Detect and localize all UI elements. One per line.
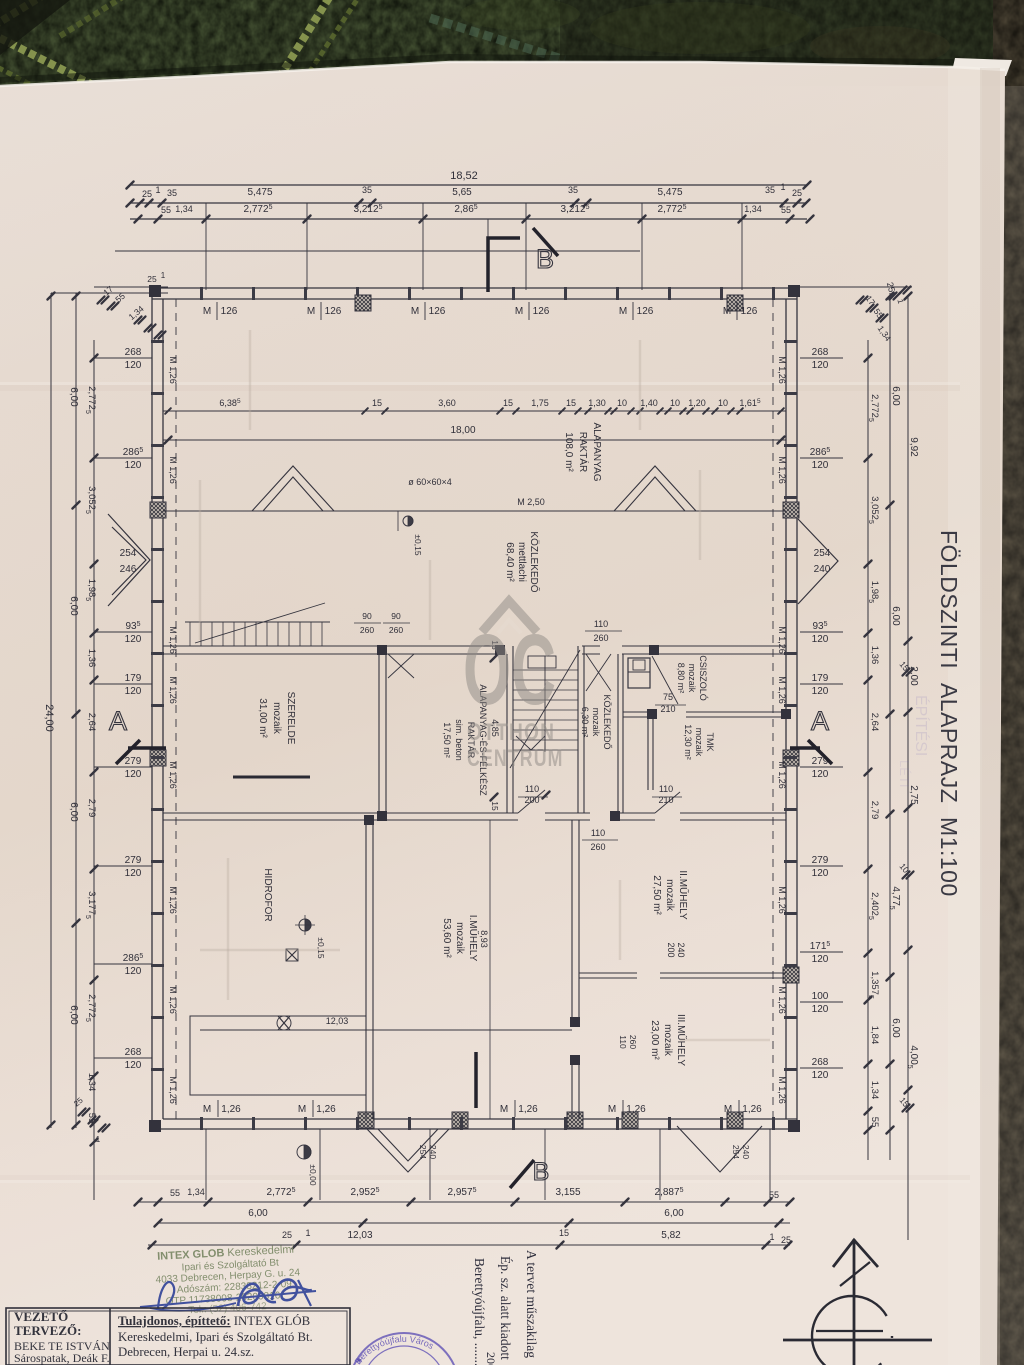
svg-text:90: 90 <box>391 611 401 621</box>
svg-text:55: 55 <box>781 205 791 215</box>
svg-text:2,75: 2,75 <box>908 785 919 805</box>
svg-text:mozaik: mozaik <box>271 702 282 735</box>
svg-text:120: 120 <box>812 1070 829 1081</box>
svg-text:6,00: 6,00 <box>890 1018 901 1038</box>
svg-text:120: 120 <box>812 686 829 697</box>
svg-text:1,20: 1,20 <box>688 398 706 408</box>
svg-text:1,84: 1,84 <box>869 1026 880 1045</box>
svg-text:A tervet műszakilag: A tervet műszakilag <box>524 1250 539 1358</box>
svg-text:179: 179 <box>812 673 829 684</box>
svg-text:M 1,26: M 1,26 <box>168 676 178 704</box>
svg-text:mozaik: mozaik <box>694 728 704 757</box>
svg-text:260: 260 <box>628 1035 638 1049</box>
svg-text:6,00: 6,00 <box>68 387 79 407</box>
svg-text:1: 1 <box>780 182 785 192</box>
svg-text:25: 25 <box>282 1230 292 1240</box>
svg-text:5,65: 5,65 <box>452 187 472 198</box>
svg-text:M 2,50: M 2,50 <box>517 497 545 507</box>
svg-text:Debrecen, Herpai u. 24.sz.: Debrecen, Herpai u. 24.sz. <box>118 1345 254 1359</box>
svg-text:5,82: 5,82 <box>661 1230 681 1241</box>
svg-text:2,9525: 2,9525 <box>351 1187 380 1198</box>
svg-text:M 1,26: M 1,26 <box>168 456 178 484</box>
svg-text:M 1,26: M 1,26 <box>168 761 178 789</box>
svg-text:M: M <box>724 1104 732 1115</box>
svg-text:35: 35 <box>362 185 372 195</box>
svg-text:6,00: 6,00 <box>664 1208 684 1219</box>
svg-text:1,36: 1,36 <box>86 649 97 668</box>
svg-text:8,93: 8,93 <box>479 930 489 948</box>
svg-text:260: 260 <box>590 842 605 852</box>
svg-text:SZERELDE: SZERELDE <box>285 692 296 745</box>
svg-text:254: 254 <box>418 1145 428 1159</box>
svg-text:120: 120 <box>125 769 142 780</box>
svg-text:LÉTI: LÉTI <box>897 760 912 787</box>
svg-text:12,30 m²: 12,30 m² <box>683 724 693 760</box>
svg-text:120: 120 <box>125 1060 142 1071</box>
svg-text:M 1,26: M 1,26 <box>168 986 178 1014</box>
svg-text:A: A <box>811 706 829 736</box>
svg-text:1,34: 1,34 <box>86 1073 97 1092</box>
svg-text:M 1,26: M 1,26 <box>168 356 178 384</box>
svg-text:1,75: 1,75 <box>531 398 549 408</box>
svg-text:M: M <box>723 306 731 317</box>
svg-text:90: 90 <box>362 611 372 621</box>
svg-text:279: 279 <box>812 855 829 866</box>
svg-text:M: M <box>500 1104 508 1115</box>
svg-text:25: 25 <box>142 189 152 199</box>
svg-text:120: 120 <box>812 460 829 471</box>
svg-text:3,60: 3,60 <box>438 398 456 408</box>
svg-text:24,00: 24,00 <box>43 704 55 732</box>
svg-text:68,40 m²: 68,40 m² <box>504 542 515 582</box>
svg-text:KÖZLEKEDŐ: KÖZLEKEDŐ <box>602 694 612 749</box>
svg-text:110: 110 <box>525 784 539 794</box>
svg-text:OC: OC <box>463 614 556 726</box>
svg-text:M 1,26: M 1,26 <box>777 676 787 704</box>
svg-text:±0,00: ±0,00 <box>308 1164 318 1185</box>
svg-text:Tulajdonos, építtető: INTEX GL: Tulajdonos, építtető: INTEX GLÓB <box>118 1314 310 1328</box>
svg-text:1,26: 1,26 <box>626 1104 646 1115</box>
svg-text:2,7725: 2,7725 <box>658 204 687 215</box>
svg-text:120: 120 <box>125 966 142 977</box>
svg-text:mozaik: mozaik <box>687 664 697 693</box>
svg-text:M 1,26: M 1,26 <box>777 356 787 384</box>
svg-text:1,26: 1,26 <box>518 1104 538 1115</box>
svg-text:6,30 m²: 6,30 m² <box>580 707 590 738</box>
svg-text:M 1,26: M 1,26 <box>777 1076 787 1104</box>
svg-text:25: 25 <box>792 188 802 198</box>
svg-text:260: 260 <box>593 633 608 643</box>
svg-text:2,7725: 2,7725 <box>244 204 273 215</box>
svg-text:FÖLDSZINTI ALAPRAJZ M1:100: FÖLDSZINTI ALAPRAJZ M1:100 <box>936 530 962 897</box>
svg-text:M: M <box>411 306 419 317</box>
svg-text:I.MŰHELY: I.MŰHELY <box>467 915 481 962</box>
svg-text:120: 120 <box>812 868 829 879</box>
svg-text:120: 120 <box>125 686 142 697</box>
svg-text:200: 200 <box>484 1352 498 1365</box>
svg-text:126: 126 <box>429 306 446 317</box>
svg-text:2,79: 2,79 <box>869 801 880 820</box>
svg-text:CSISZOLÓ: CSISZOLÓ <box>698 655 708 701</box>
svg-text:6,00: 6,00 <box>68 1005 79 1025</box>
svg-text:1: 1 <box>96 1135 101 1144</box>
svg-text:5,475: 5,475 <box>247 187 272 198</box>
svg-text:110: 110 <box>594 619 608 629</box>
svg-text:55: 55 <box>170 1188 180 1198</box>
svg-text:mozaik: mozaik <box>662 1024 673 1057</box>
svg-text:1,34: 1,34 <box>187 1187 205 1197</box>
svg-text:B: B <box>533 1158 550 1186</box>
svg-text:B: B <box>536 244 554 274</box>
svg-text:120: 120 <box>812 769 829 780</box>
svg-text:18,00: 18,00 <box>450 425 475 436</box>
svg-text:246: 246 <box>120 564 137 575</box>
svg-text:HIDROFOR: HIDROFOR <box>262 868 273 921</box>
svg-text:120: 120 <box>125 634 142 645</box>
svg-text:ÉPÍTÉSI: ÉPÍTÉSI <box>912 695 931 756</box>
svg-text:120: 120 <box>125 460 142 471</box>
svg-text:mozaik: mozaik <box>454 922 465 955</box>
svg-text:ALAPANYAG: ALAPANYAG <box>591 422 602 481</box>
svg-text:120: 120 <box>812 634 829 645</box>
svg-text:6,00: 6,00 <box>68 802 79 822</box>
svg-text:1,34: 1,34 <box>175 204 193 214</box>
svg-text:M 1,26: M 1,26 <box>777 886 787 914</box>
svg-text:mozaik: mozaik <box>664 879 675 912</box>
svg-text:1: 1 <box>155 185 160 195</box>
svg-text:210: 210 <box>660 704 675 714</box>
svg-text:mozaik: mozaik <box>591 708 601 737</box>
svg-text:1,30: 1,30 <box>588 398 606 408</box>
svg-text:±0,15: ±0,15 <box>316 937 326 958</box>
svg-text:10: 10 <box>670 398 680 408</box>
svg-text:126: 126 <box>325 306 342 317</box>
svg-text:279: 279 <box>125 756 142 767</box>
svg-text:1: 1 <box>161 271 166 280</box>
svg-text:12,03: 12,03 <box>326 1016 349 1026</box>
svg-text:210: 210 <box>658 795 673 805</box>
svg-text:254: 254 <box>731 1145 741 1159</box>
svg-text:27,50 m²: 27,50 m² <box>651 875 662 915</box>
svg-text:2,9575: 2,9575 <box>448 1187 477 1198</box>
svg-text:6,00: 6,00 <box>890 606 901 626</box>
svg-text:M: M <box>515 306 523 317</box>
svg-text:10: 10 <box>718 398 728 408</box>
svg-text:15: 15 <box>559 1228 569 1238</box>
svg-text:OTTHON: OTTHON <box>467 718 555 746</box>
svg-text:120: 120 <box>125 868 142 879</box>
svg-text:120: 120 <box>812 360 829 371</box>
svg-text:23,00 m²: 23,00 m² <box>649 1020 660 1060</box>
svg-text:100: 100 <box>812 991 829 1002</box>
svg-text:RAKTÁR: RAKTÁR <box>577 432 590 473</box>
svg-text:6,00: 6,00 <box>248 1208 268 1219</box>
svg-text:126: 126 <box>741 306 758 317</box>
svg-text:KÖZLEKEDŐ: KÖZLEKEDŐ <box>528 531 542 592</box>
svg-text:15: 15 <box>566 398 576 408</box>
svg-text:55: 55 <box>769 1190 779 1200</box>
svg-text:1,36: 1,36 <box>869 646 880 665</box>
svg-text:M 1,26: M 1,26 <box>168 1076 178 1104</box>
svg-text:Ép. sz. alatt kiadott: Ép. sz. alatt kiadott <box>498 1256 513 1360</box>
svg-text:200: 200 <box>666 942 676 957</box>
svg-text:M 1,26: M 1,26 <box>777 456 787 484</box>
svg-text:2,64: 2,64 <box>869 713 880 732</box>
svg-text:6,00: 6,00 <box>890 386 901 406</box>
svg-text:3,2125: 3,2125 <box>561 204 590 215</box>
svg-text:1,26: 1,26 <box>742 1104 762 1115</box>
svg-text:M 1,26: M 1,26 <box>168 626 178 654</box>
svg-text:279: 279 <box>125 855 142 866</box>
svg-text:120: 120 <box>812 1004 829 1015</box>
svg-text:179: 179 <box>125 673 142 684</box>
svg-text:35: 35 <box>167 188 177 198</box>
svg-text:5,475: 5,475 <box>657 187 682 198</box>
svg-text:±0,15: ±0,15 <box>413 534 423 555</box>
svg-text:1: 1 <box>305 1228 310 1238</box>
svg-text:126: 126 <box>221 306 238 317</box>
svg-text:240: 240 <box>814 564 831 575</box>
svg-text:254: 254 <box>120 548 137 559</box>
svg-text:TMK: TMK <box>705 733 715 752</box>
svg-text:✶: ✶ <box>355 1356 363 1365</box>
svg-text:CENTRUM: CENTRUM <box>467 746 564 772</box>
svg-text:15: 15 <box>490 801 500 811</box>
svg-text:M 1,26: M 1,26 <box>777 761 787 789</box>
svg-text:Berettyóújfalu, .........: Berettyóújfalu, ......... <box>472 1258 487 1365</box>
svg-text:18,52: 18,52 <box>450 170 478 182</box>
svg-text:75: 75 <box>663 692 673 702</box>
svg-text:3,2125: 3,2125 <box>354 204 383 215</box>
svg-text:9,92: 9,92 <box>908 437 919 457</box>
svg-text:25: 25 <box>781 1235 791 1245</box>
svg-text:1,34: 1,34 <box>744 204 762 214</box>
svg-text:31,00 m²: 31,00 m² <box>257 698 268 738</box>
svg-text:110: 110 <box>618 1035 628 1049</box>
svg-text:M: M <box>203 306 211 317</box>
svg-text:6,00: 6,00 <box>68 596 79 616</box>
svg-text:110: 110 <box>659 784 673 794</box>
svg-text:M: M <box>608 1104 616 1115</box>
svg-text:3,155: 3,155 <box>555 1187 580 1198</box>
svg-text:240: 240 <box>428 1145 438 1159</box>
svg-text:M: M <box>298 1104 306 1115</box>
svg-text:35: 35 <box>765 185 775 195</box>
svg-text:110: 110 <box>591 828 605 838</box>
svg-text:260: 260 <box>360 625 374 635</box>
svg-text:25: 25 <box>147 274 157 284</box>
svg-text:1,26: 1,26 <box>316 1104 336 1115</box>
svg-text:15: 15 <box>372 398 382 408</box>
svg-text:M 1,26: M 1,26 <box>168 886 178 914</box>
svg-text:268: 268 <box>812 1057 829 1068</box>
svg-text:17,50 m²: 17,50 m² <box>442 722 452 758</box>
svg-text:1,34: 1,34 <box>869 1081 880 1100</box>
svg-text:M: M <box>307 306 315 317</box>
svg-text:VEZETŐ: VEZETŐ <box>14 1309 68 1324</box>
svg-text:1,40: 1,40 <box>640 398 658 408</box>
svg-text:1: 1 <box>769 1232 774 1242</box>
svg-text:mettlachi: mettlachi <box>516 542 527 582</box>
svg-text:10: 10 <box>617 398 627 408</box>
svg-text:240: 240 <box>676 942 686 957</box>
svg-text:126: 126 <box>637 306 654 317</box>
svg-text:2,7725: 2,7725 <box>267 1187 296 1198</box>
svg-text:M: M <box>619 306 627 317</box>
svg-text:2,64: 2,64 <box>86 713 97 732</box>
svg-text:240: 240 <box>741 1145 751 1159</box>
svg-text:268: 268 <box>125 1047 142 1058</box>
svg-text:Kereskedelmi, Ipari és Szolgál: Kereskedelmi, Ipari és Szolgáltató Bt. <box>118 1330 313 1344</box>
svg-text:2,8875: 2,8875 <box>655 1187 684 1198</box>
svg-text:II.MŰHELY: II.MŰHELY <box>677 870 691 920</box>
svg-text:268: 268 <box>812 347 829 358</box>
svg-text:1,26: 1,26 <box>221 1104 241 1115</box>
svg-text:2,79: 2,79 <box>86 799 97 818</box>
svg-text:Sárospatak, Deák F.: Sárospatak, Deák F. <box>14 1351 110 1365</box>
svg-text:55: 55 <box>869 1117 880 1128</box>
svg-text:260: 260 <box>389 625 403 635</box>
svg-text:120: 120 <box>812 954 829 965</box>
svg-text:M: M <box>203 1104 211 1115</box>
svg-text:TERVEZŐ:: TERVEZŐ: <box>14 1323 81 1338</box>
svg-text:ø 60×60×4: ø 60×60×4 <box>408 477 452 487</box>
svg-text:55: 55 <box>161 205 171 215</box>
svg-text:268: 268 <box>125 347 142 358</box>
svg-text:254: 254 <box>814 548 831 559</box>
svg-text:15: 15 <box>503 398 513 408</box>
svg-text:126: 126 <box>533 306 550 317</box>
svg-text:120: 120 <box>125 360 142 371</box>
svg-text:108,0 m²: 108,0 m² <box>563 432 574 472</box>
svg-text:M 1,26: M 1,26 <box>777 986 787 1014</box>
svg-text:A: A <box>109 706 127 736</box>
svg-text:M 1,26: M 1,26 <box>777 626 787 654</box>
svg-text:12,03: 12,03 <box>347 1230 372 1241</box>
svg-text:35: 35 <box>568 185 578 195</box>
svg-text:8,80 m²: 8,80 m² <box>676 663 686 694</box>
svg-text:200: 200 <box>524 795 539 805</box>
svg-text:53,60 m²: 53,60 m² <box>441 918 452 958</box>
